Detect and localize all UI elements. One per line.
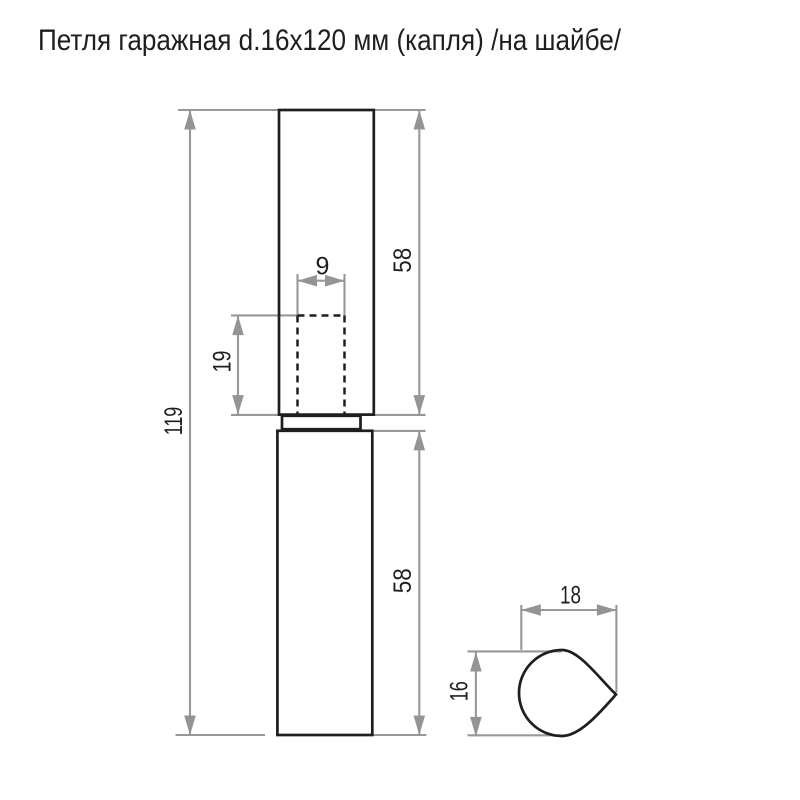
svg-text:Петля гаражная d.16x120 мм (ка: Петля гаражная d.16x120 мм (капля) /на ш… (38, 24, 622, 57)
svg-text:58: 58 (389, 568, 417, 593)
svg-text:58: 58 (389, 248, 417, 273)
svg-text:19: 19 (209, 351, 237, 373)
svg-text:16: 16 (446, 681, 474, 701)
svg-text:9: 9 (316, 253, 330, 281)
svg-text:119: 119 (160, 407, 188, 436)
svg-text:18: 18 (560, 582, 581, 610)
